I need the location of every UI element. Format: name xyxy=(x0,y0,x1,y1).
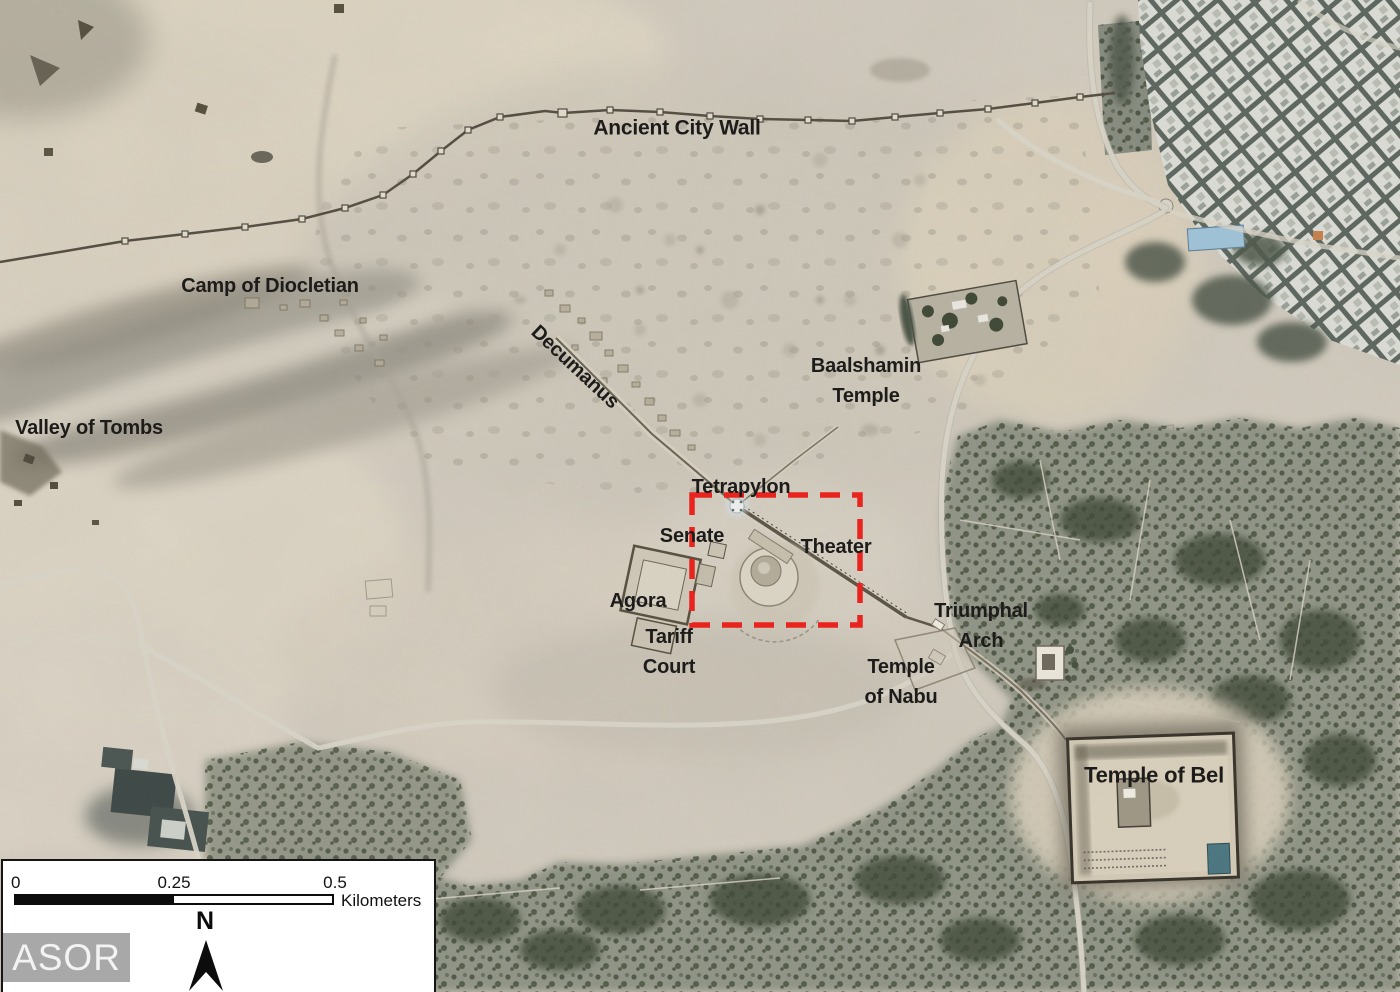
highlight-overlay xyxy=(0,0,1400,992)
satellite-map-canvas: Ancient City WallCamp of DiocletianValle… xyxy=(0,0,1400,992)
scale-unit-label: Kilometers xyxy=(341,891,421,911)
scale-tick-quarter: 0.25 xyxy=(157,873,190,893)
highlight-box xyxy=(692,495,860,625)
scale-bar xyxy=(14,894,334,905)
scale-bar-filled-segment xyxy=(14,894,174,905)
north-arrow-icon xyxy=(189,940,223,991)
asor-text: ASOR xyxy=(12,937,121,979)
scale-bar-empty-segment xyxy=(174,894,334,905)
scale-tick-half: 0.5 xyxy=(323,873,347,893)
scale-tick-zero: 0 xyxy=(11,873,20,893)
north-label: N xyxy=(196,907,214,936)
asor-watermark: ASOR xyxy=(3,933,130,982)
